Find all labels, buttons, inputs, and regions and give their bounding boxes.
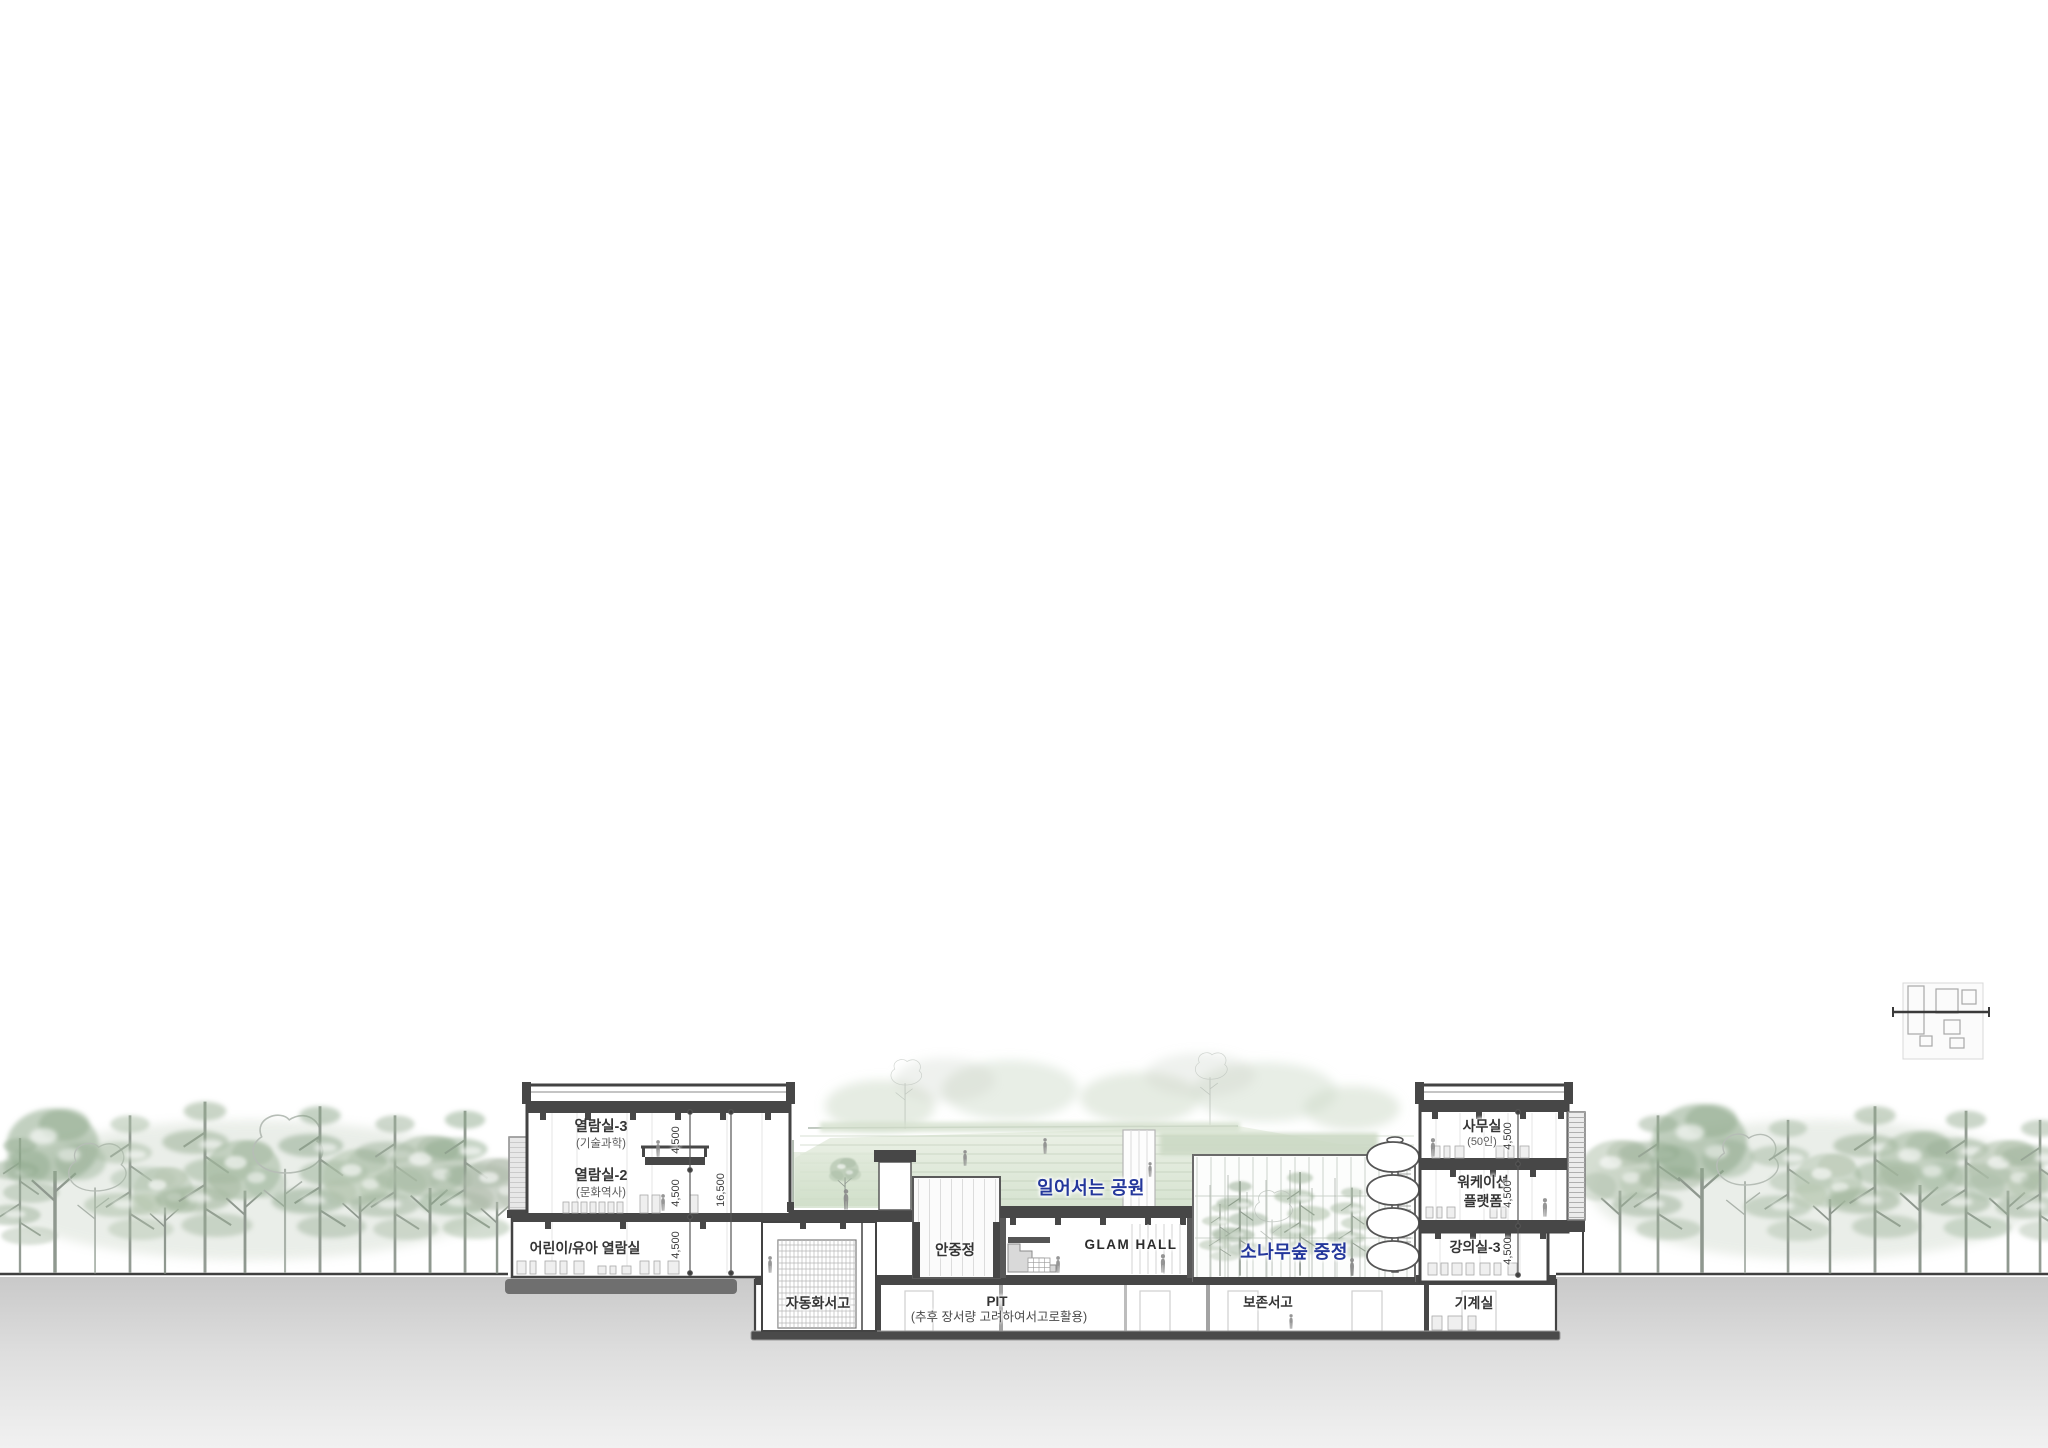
label-reading2: 열람실-2: [575, 1169, 628, 1185]
key-plan: [1893, 983, 1989, 1059]
label-inner-courtyard: 안중정: [935, 1244, 975, 1260]
section-drawing: 열람실-3 (기술과학) 열람실-2 (문화역사) 어린이/유아 열람실 안중정…: [0, 0, 2048, 1448]
label-reading2-sub: (문화역사): [576, 1187, 626, 1199]
dim-left-2f: 4,500: [670, 1179, 682, 1207]
dim-left-3f: 4,500: [670, 1126, 682, 1154]
label-glam-hall: GLAM HALL: [1085, 1238, 1178, 1253]
dim-right-workation: 4,500: [1502, 1180, 1514, 1208]
label-pit-sub: (추후 장서량 고려하여서고로활용): [911, 1311, 1087, 1325]
dim-left-total: 16,500: [715, 1173, 727, 1207]
label-kids-room: 어린이/유아 열람실: [530, 1241, 641, 1256]
label-mech-room: 기계실: [1455, 1296, 1494, 1311]
section-linework: [0, 0, 2048, 1448]
label-park-title: 일어서는 공원: [1037, 1179, 1145, 1198]
label-auto-stack: 자동화서고: [786, 1296, 850, 1311]
dim-left-1f: 4,500: [670, 1231, 682, 1259]
label-reading3: 열람실-3: [575, 1120, 628, 1136]
label-reading3-sub: (기술과학): [576, 1138, 626, 1150]
label-pine-courtyard-title: 소나무숲 중정: [1240, 1243, 1348, 1262]
right-forest: [1579, 1104, 2048, 1273]
glam-shelf: [1028, 1258, 1050, 1272]
dim-right-lecture: 4,500: [1502, 1237, 1514, 1265]
label-office: 사무실: [1463, 1119, 1502, 1134]
foundation-mat: [505, 1279, 737, 1294]
dim-right-office: 4,500: [1502, 1122, 1514, 1150]
left-block: [505, 1082, 795, 1294]
label-pit: PIT: [986, 1295, 1007, 1310]
label-workation-2: 플랫폼: [1464, 1194, 1503, 1209]
label-office-sub: (50인): [1467, 1137, 1497, 1149]
left-forest: [0, 1102, 533, 1274]
label-preserve-stack: 보존서고: [1243, 1296, 1293, 1311]
label-lecture-room: 강의실-3: [1449, 1240, 1500, 1255]
